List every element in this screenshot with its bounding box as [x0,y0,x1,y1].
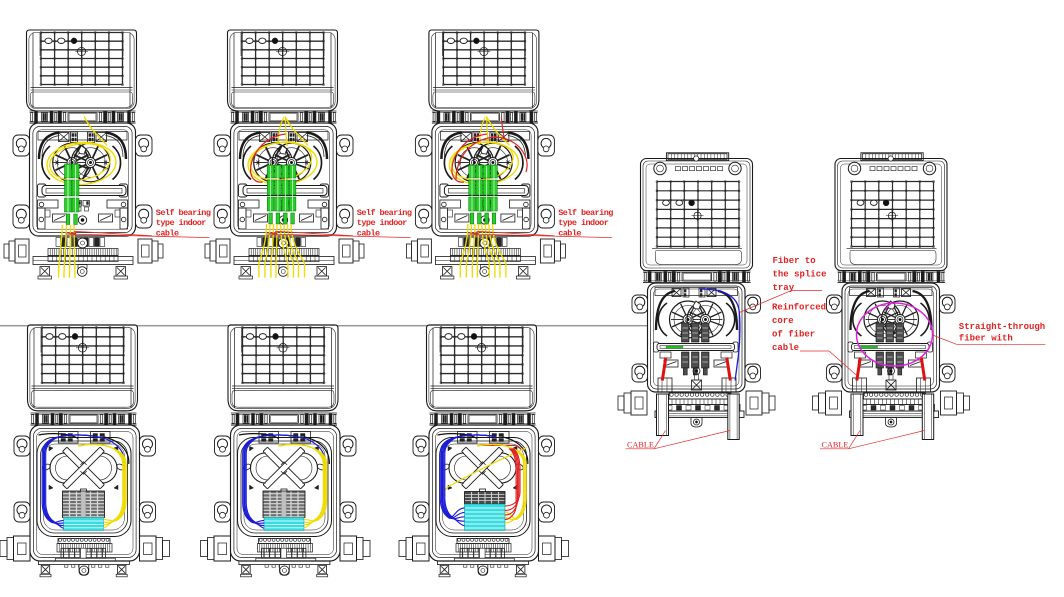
svg-text:Reinforced: Reinforced [772,303,826,313]
svg-text:CABLE: CABLE [822,441,849,450]
svg-text:type indoor: type indoor [156,218,207,228]
svg-text:cable: cable [558,229,581,239]
svg-text:core: core [772,316,794,326]
svg-text:type indoor: type indoor [558,218,609,228]
svg-text:Fiber to: Fiber to [773,256,816,266]
svg-text:cable: cable [357,229,380,239]
svg-text:tray: tray [773,283,795,293]
svg-text:CABLE: CABLE [627,441,654,450]
svg-text:Self bearing: Self bearing [558,208,613,218]
svg-text:fiber with: fiber with [959,334,1013,344]
svg-text:type indoor: type indoor [357,218,408,228]
svg-text:Self bearing: Self bearing [156,208,211,218]
svg-text:cable: cable [156,229,179,239]
svg-text:cable: cable [772,343,799,353]
svg-text:Straight-through: Straight-through [959,322,1045,332]
svg-text:of fiber: of fiber [772,330,815,340]
svg-text:the splice: the splice [773,269,827,279]
svg-text:Self bearing: Self bearing [357,208,412,218]
